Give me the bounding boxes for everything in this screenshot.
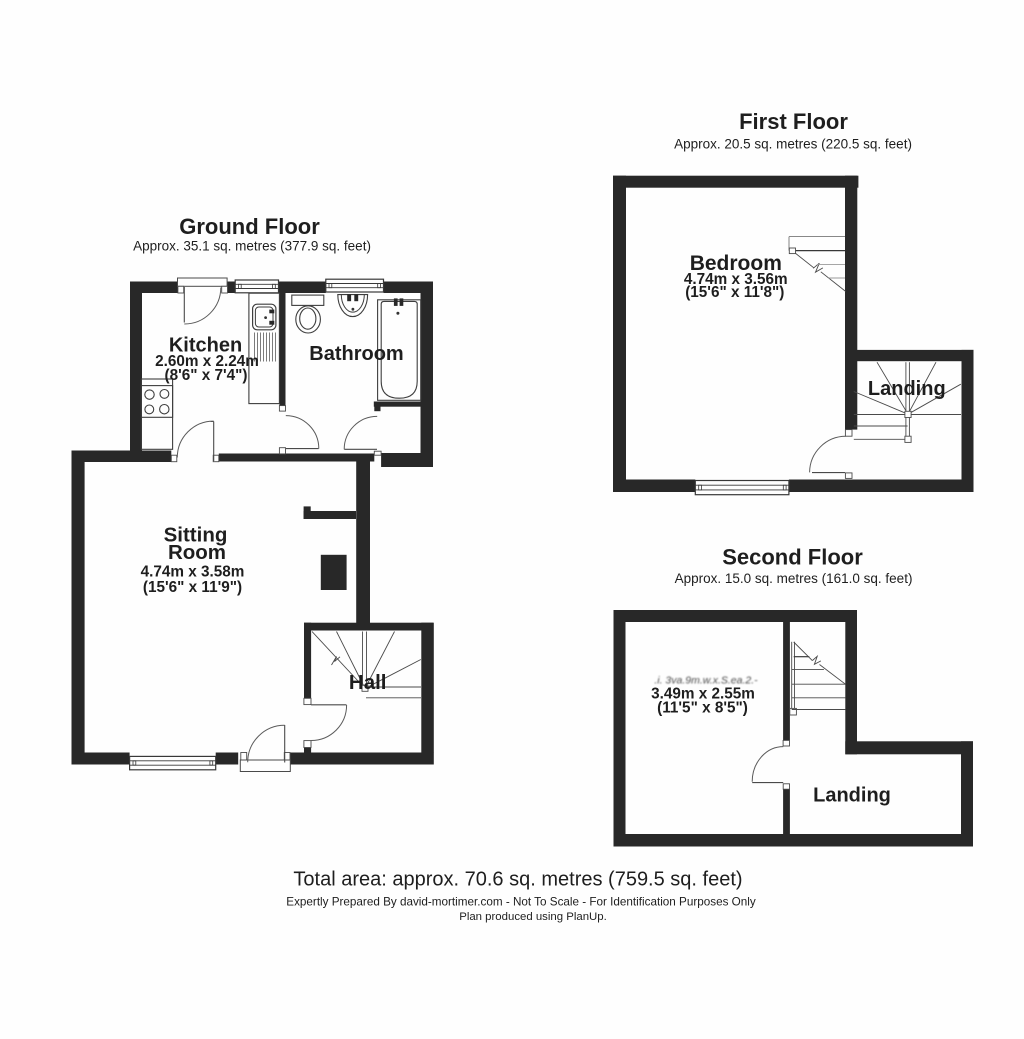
svg-text:4.74m x 3.58m: 4.74m x 3.58m (141, 564, 245, 581)
svg-text:Second Floor: Second Floor (722, 545, 863, 570)
svg-text:First Floor: First Floor (739, 109, 848, 134)
svg-text:Bathroom: Bathroom (309, 343, 403, 365)
svg-text:(15'6" x 11'9"): (15'6" x 11'9") (143, 579, 242, 596)
svg-text:(8'6" x 7'4"): (8'6" x 7'4") (164, 367, 247, 384)
svg-text:Landing: Landing (813, 785, 891, 807)
svg-text:Approx. 15.0 sq. metres (161.0: Approx. 15.0 sq. metres (161.0 sq. feet) (675, 571, 913, 586)
svg-text:Plan produced using PlanUp.: Plan produced using PlanUp. (459, 911, 607, 923)
svg-text:(11'5" x 8'5"): (11'5" x 8'5") (657, 700, 748, 717)
svg-text:Landing: Landing (868, 378, 946, 400)
svg-text:Total area: approx. 70.6 sq. m: Total area: approx. 70.6 sq. metres (759… (293, 869, 742, 891)
svg-text:Ground Floor: Ground Floor (179, 214, 320, 239)
svg-text:Expertly Prepared By david-mor: Expertly Prepared By david-mortimer.com … (286, 896, 756, 909)
svg-text:Approx. 20.5 sq. metres (220.5: Approx. 20.5 sq. metres (220.5 sq. feet) (674, 137, 912, 152)
svg-text:Hall: Hall (349, 671, 387, 694)
svg-text:(15'6" x 11'8"): (15'6" x 11'8") (685, 284, 784, 301)
svg-text:Room: Room (168, 541, 226, 564)
svg-text:Approx. 35.1 sq. metres (377.9: Approx. 35.1 sq. metres (377.9 sq. feet) (133, 239, 371, 254)
